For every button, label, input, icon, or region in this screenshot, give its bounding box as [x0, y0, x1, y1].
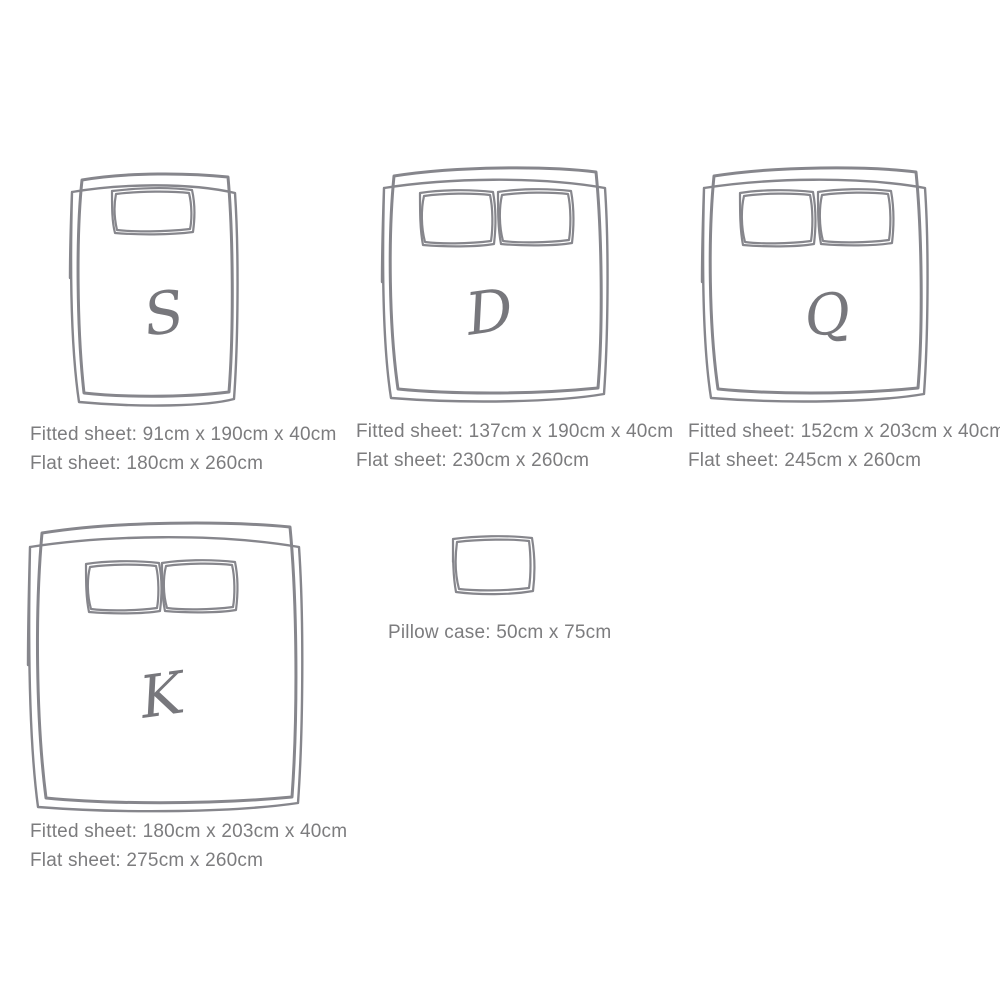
double-flat-sheet-text: Flat sheet: 230cm x 260cm [356, 446, 673, 475]
queen-pillow-left-icon [742, 194, 813, 244]
king-size-letter: K [135, 658, 192, 732]
king-bed-illustration: K [12, 505, 317, 820]
single-pillow-icon-sketch [112, 188, 194, 234]
single-size-letter: S [140, 277, 189, 350]
single-flat-sheet-text: Flat sheet: 180cm x 260cm [30, 449, 337, 478]
queen-pillow-left-icon-sketch [740, 190, 815, 246]
pillow-case-icon-sketch [453, 536, 534, 594]
queen-size-letter: Q [800, 280, 855, 351]
king-flat-sheet-text: Flat sheet: 275cm x 260cm [30, 846, 347, 875]
king-pillow-right-icon [164, 564, 235, 610]
single-bed-illustration: S [58, 158, 248, 413]
pillow-case-text: Pillow case: 50cm x 75cm [388, 618, 611, 647]
queen-fitted-sheet-text: Fitted sheet: 152cm x 203cm x 40cm [688, 417, 1000, 446]
pillow-case-illustration [445, 530, 540, 600]
single-spec: Fitted sheet: 91cm x 190cm x 40cm Flat s… [30, 420, 337, 478]
queen-spec: Fitted sheet: 152cm x 203cm x 40cm Flat … [688, 417, 1000, 475]
pillow-case-icon [456, 540, 531, 591]
queen-pillow-right-icon [820, 193, 891, 243]
king-fitted-sheet-text: Fitted sheet: 180cm x 203cm x 40cm [30, 817, 347, 846]
queen-bed-illustration: Q [688, 152, 938, 407]
single-pillow-icon [115, 192, 192, 232]
double-bed-illustration: D [368, 152, 618, 407]
double-pillow-right-icon-sketch [498, 189, 573, 245]
double-pillow-right-icon [500, 193, 571, 243]
double-spec: Fitted sheet: 137cm x 190cm x 40cm Flat … [356, 417, 673, 475]
double-fitted-sheet-text: Fitted sheet: 137cm x 190cm x 40cm [356, 417, 673, 446]
size-guide-diagram: S D Q K Fitted sheet: 91cm x 190cm [0, 0, 1000, 1000]
king-pillow-left-icon [88, 565, 159, 611]
pillow-case-spec: Pillow case: 50cm x 75cm [388, 618, 611, 647]
king-pillow-left-icon-sketch [86, 561, 161, 613]
queen-flat-sheet-text: Flat sheet: 245cm x 260cm [688, 446, 1000, 475]
single-fitted-sheet-text: Fitted sheet: 91cm x 190cm x 40cm [30, 420, 337, 449]
double-pillow-left-icon-sketch [420, 190, 495, 246]
king-pillow-right-icon-sketch [162, 560, 237, 612]
king-spec: Fitted sheet: 180cm x 203cm x 40cm Flat … [30, 817, 347, 875]
double-pillow-left-icon [422, 194, 493, 244]
queen-pillow-right-icon-sketch [818, 189, 893, 245]
double-size-letter: D [461, 275, 518, 349]
